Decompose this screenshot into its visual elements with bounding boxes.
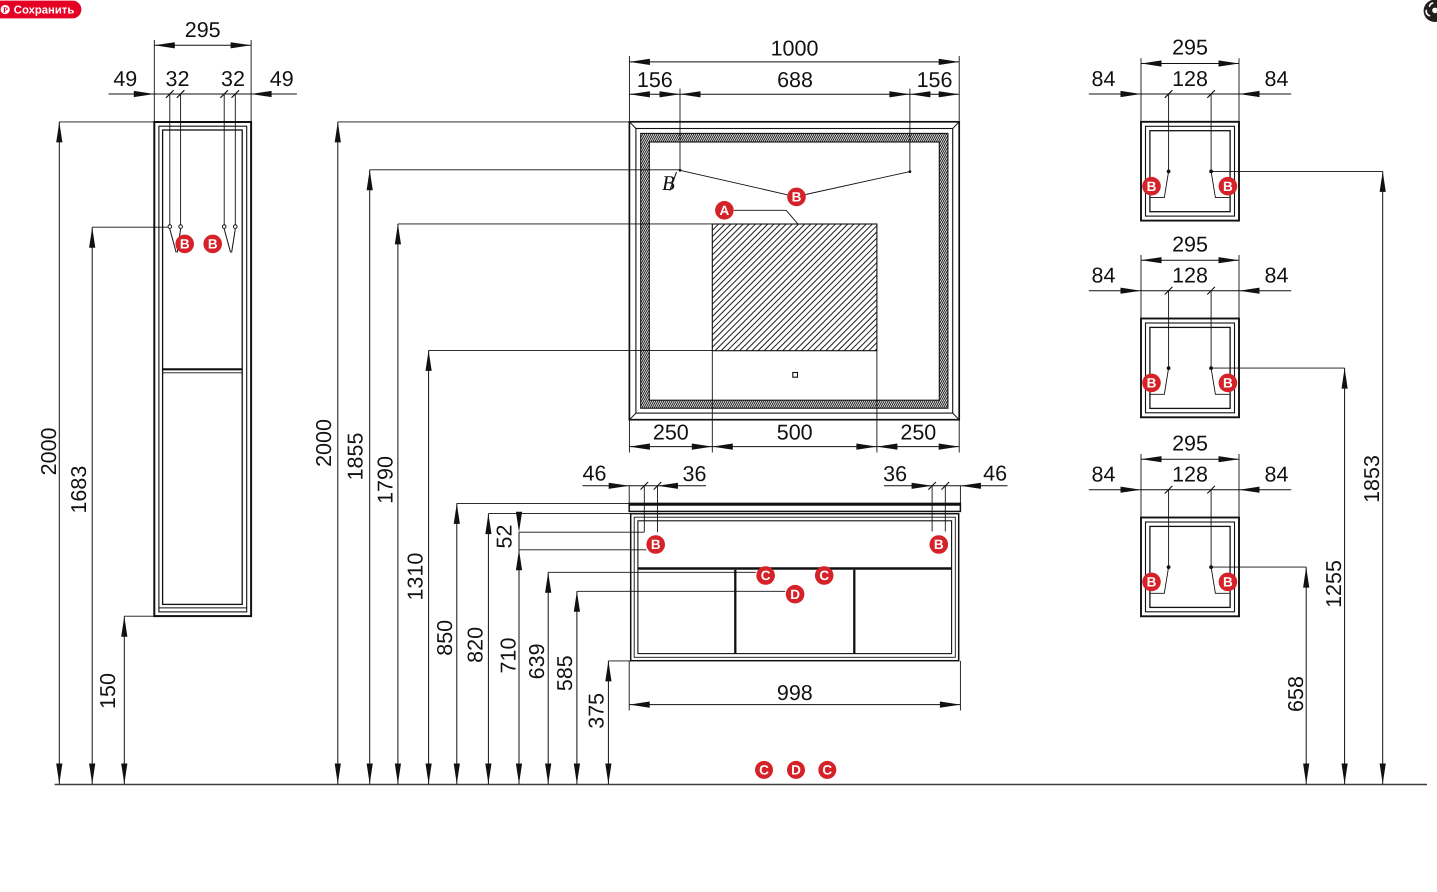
svg-text:156: 156	[637, 68, 673, 92]
svg-text:658: 658	[1284, 676, 1308, 712]
svg-text:1853: 1853	[1360, 455, 1384, 503]
svg-text:128: 128	[1172, 67, 1208, 91]
svg-text:1310: 1310	[403, 553, 427, 601]
svg-text:C: C	[819, 568, 829, 583]
svg-text:52: 52	[493, 525, 517, 549]
svg-text:250: 250	[653, 420, 689, 444]
svg-text:710: 710	[496, 638, 520, 674]
svg-text:B: B	[1147, 179, 1157, 194]
svg-text:2000: 2000	[37, 427, 61, 475]
svg-text:84: 84	[1265, 67, 1289, 91]
svg-text:D: D	[790, 587, 800, 602]
svg-text:998: 998	[777, 681, 813, 705]
svg-text:84: 84	[1265, 264, 1289, 288]
svg-text:639: 639	[525, 643, 549, 679]
svg-text:1255: 1255	[1322, 560, 1346, 608]
svg-text:820: 820	[464, 627, 488, 663]
svg-text:B: B	[208, 237, 218, 252]
svg-text:32: 32	[221, 67, 245, 91]
svg-text:1683: 1683	[67, 466, 91, 514]
svg-text:B: B	[1147, 575, 1157, 590]
svg-text:84: 84	[1265, 463, 1289, 487]
svg-text:C: C	[822, 763, 832, 778]
svg-text:1000: 1000	[771, 37, 819, 61]
svg-text:46: 46	[583, 462, 607, 486]
svg-text:84: 84	[1092, 463, 1116, 487]
svg-text:36: 36	[883, 462, 907, 486]
svg-text:295: 295	[1172, 36, 1208, 60]
svg-text:500: 500	[777, 420, 813, 444]
svg-text:C: C	[759, 763, 769, 778]
svg-text:A: A	[720, 203, 730, 218]
svg-text:B: B	[934, 537, 944, 552]
svg-text:B: B	[1223, 575, 1233, 590]
svg-text:84: 84	[1092, 67, 1116, 91]
svg-text:36: 36	[683, 462, 707, 486]
svg-text:Сохранить: Сохранить	[14, 5, 75, 17]
svg-text:156: 156	[917, 68, 953, 92]
svg-text:B: B	[1147, 376, 1157, 391]
svg-text:128: 128	[1172, 264, 1208, 288]
svg-text:375: 375	[585, 693, 609, 729]
svg-text:1790: 1790	[373, 456, 397, 504]
svg-text:295: 295	[185, 18, 221, 42]
svg-text:49: 49	[270, 67, 294, 91]
svg-text:585: 585	[553, 655, 577, 691]
svg-text:49: 49	[113, 67, 137, 91]
svg-text:295: 295	[1172, 232, 1208, 256]
svg-text:84: 84	[1092, 264, 1116, 288]
svg-text:688: 688	[777, 68, 813, 92]
svg-text:C: C	[761, 568, 771, 583]
svg-text:1855: 1855	[344, 433, 368, 481]
svg-text:46: 46	[983, 462, 1007, 486]
svg-text:D: D	[791, 763, 801, 778]
svg-text:850: 850	[433, 620, 457, 656]
svg-text:150: 150	[96, 673, 120, 709]
svg-text:295: 295	[1172, 431, 1208, 455]
svg-text:B: B	[651, 537, 661, 552]
svg-text:128: 128	[1172, 463, 1208, 487]
svg-text:250: 250	[900, 420, 936, 444]
svg-text:P: P	[3, 5, 8, 14]
svg-text:B: B	[792, 190, 802, 205]
svg-text:B: B	[180, 237, 190, 252]
svg-text:B: B	[1223, 376, 1233, 391]
svg-text:B: B	[1223, 179, 1233, 194]
svg-text:2000: 2000	[312, 419, 336, 467]
svg-text:32: 32	[166, 67, 190, 91]
